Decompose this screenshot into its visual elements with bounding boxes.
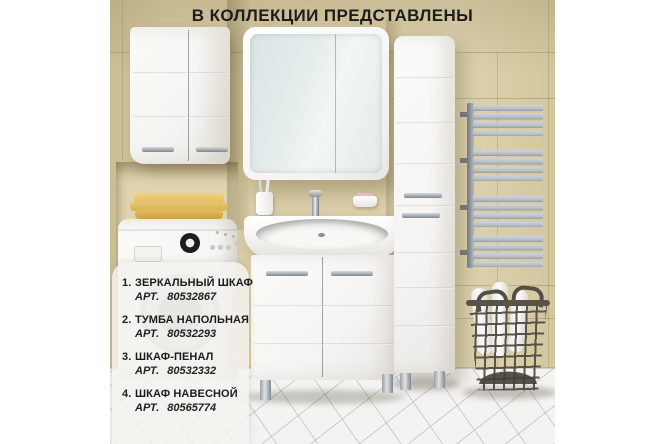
washer-knob: [180, 233, 200, 253]
product-name: 2.ТУМБА НАПОЛЬНАЯ: [122, 314, 243, 326]
tall-cabinet-seam: [396, 77, 453, 79]
product-name: 1.ЗЕРКАЛЬНЫЙ ШКАФ: [122, 277, 243, 289]
tall-cabinet-seam: [396, 163, 453, 165]
wall-cabinet-seam: [133, 72, 227, 74]
tall-cabinet-handle: [402, 213, 440, 218]
mirror-door-split: [335, 34, 336, 173]
faucet-spout: [309, 190, 322, 197]
tall-cabinet-handle: [404, 193, 442, 198]
towel-radiator: [473, 150, 543, 181]
mirror-glass: [250, 34, 382, 173]
vanity-handle: [266, 271, 308, 276]
list-item: 1.ЗЕРКАЛЬНЫЙ ШКАФ АРТ.80532867: [122, 277, 243, 303]
promo-image: 1.ЗЕРКАЛЬНЫЙ ШКАФ АРТ.80532867 2.ТУМБА Н…: [0, 0, 666, 444]
list-item: 4.ШКАФ НАВЕСНОЙ АРТ.80565774: [122, 388, 243, 414]
tall-cabinet-seam: [396, 287, 453, 289]
tall-cabinet: [394, 36, 455, 373]
tall-cabinet-seam: [396, 252, 453, 254]
yellow-towel: [135, 210, 223, 219]
washer-leds: [216, 231, 219, 234]
vanity-handle: [331, 271, 373, 276]
vanity-cabinet: [251, 255, 397, 380]
product-art-number: АРТ.80532867: [135, 291, 243, 303]
tall-cabinet-door-gap: [396, 205, 453, 207]
product-list-panel: 1.ЗЕРКАЛЬНЫЙ ШКАФ АРТ.80532867 2.ТУМБА Н…: [112, 262, 249, 444]
washer-top-seam: [118, 229, 237, 231]
mirror-cabinet: [243, 27, 389, 180]
product-name: 4.ШКАФ НАВЕСНОЙ: [122, 388, 243, 400]
sink-overflow: [318, 233, 325, 237]
tall-cabinet-leg: [400, 373, 411, 390]
product-art-number: АРТ.80532332: [135, 365, 243, 377]
sink-basin: [244, 216, 402, 258]
vanity-door-split: [322, 257, 323, 377]
product-art-number: АРТ.80532293: [135, 328, 243, 340]
vanity-seam: [254, 305, 394, 307]
vanity-leg: [260, 380, 271, 400]
bathroom-scene-photo: 1.ЗЕРКАЛЬНЫЙ ШКАФ АРТ.80532867 2.ТУМБА Н…: [110, 0, 555, 444]
washer-buttons: [210, 245, 215, 250]
wall-cabinet-seam: [133, 116, 227, 118]
toothbrush-cup: [256, 192, 273, 215]
wall-cabinet: [130, 27, 230, 164]
towel-radiator: [473, 105, 543, 136]
towel-radiator: [473, 196, 543, 227]
wall-cabinet-door-split: [188, 30, 189, 161]
wall-cabinet-handle: [142, 147, 174, 152]
product-name: 3.ШКАФ-ПЕНАЛ: [122, 351, 243, 363]
soap-dish: [353, 196, 377, 207]
page-title: В КОЛЛЕКЦИИ ПРЕДСТАВЛЕНЫ: [110, 6, 555, 26]
list-item: 2.ТУМБА НАПОЛЬНАЯ АРТ.80532293: [122, 314, 243, 340]
towel-radiator: [473, 236, 543, 267]
tall-cabinet-seam: [396, 325, 453, 327]
wall-cabinet-handle: [196, 147, 228, 152]
washer-detergent-drawer: [134, 246, 162, 262]
wall-tile-joint: [548, 0, 549, 368]
tall-cabinet-seam: [396, 122, 453, 124]
vanity-seam: [254, 343, 394, 345]
tall-cabinet-leg: [434, 371, 445, 388]
laundry-basket: [466, 302, 550, 394]
product-art-number: АРТ.80565774: [135, 402, 243, 414]
vanity-leg: [382, 374, 393, 393]
list-item: 3.ШКАФ-ПЕНАЛ АРТ.80532332: [122, 351, 243, 377]
basket-rim: [466, 300, 550, 306]
